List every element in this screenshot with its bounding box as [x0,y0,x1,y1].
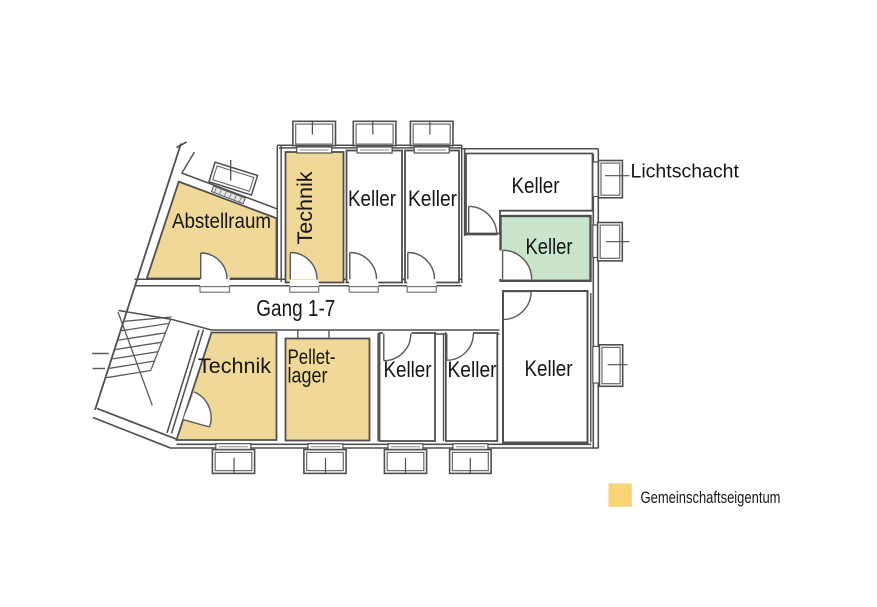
svg-text:Keller: Keller [408,186,457,211]
svg-text:Keller: Keller [526,234,573,259]
svg-text:Technik: Technik [198,355,272,378]
svg-text:Keller: Keller [448,357,497,382]
svg-text:Lichtschacht: Lichtschacht [631,161,740,183]
svg-text:Keller: Keller [525,356,573,381]
svg-text:Keller: Keller [512,173,560,198]
svg-text:Gang 1-7: Gang 1-7 [256,295,335,321]
svg-text:Abstellraum: Abstellraum [172,210,271,233]
svg-text:Keller: Keller [348,186,396,211]
svg-text:Keller: Keller [384,357,432,382]
svg-text:Technik: Technik [294,171,317,245]
svg-text:Gemeinschaftseigentum: Gemeinschaftseigentum [641,489,781,507]
svg-text:lager: lager [288,365,328,388]
